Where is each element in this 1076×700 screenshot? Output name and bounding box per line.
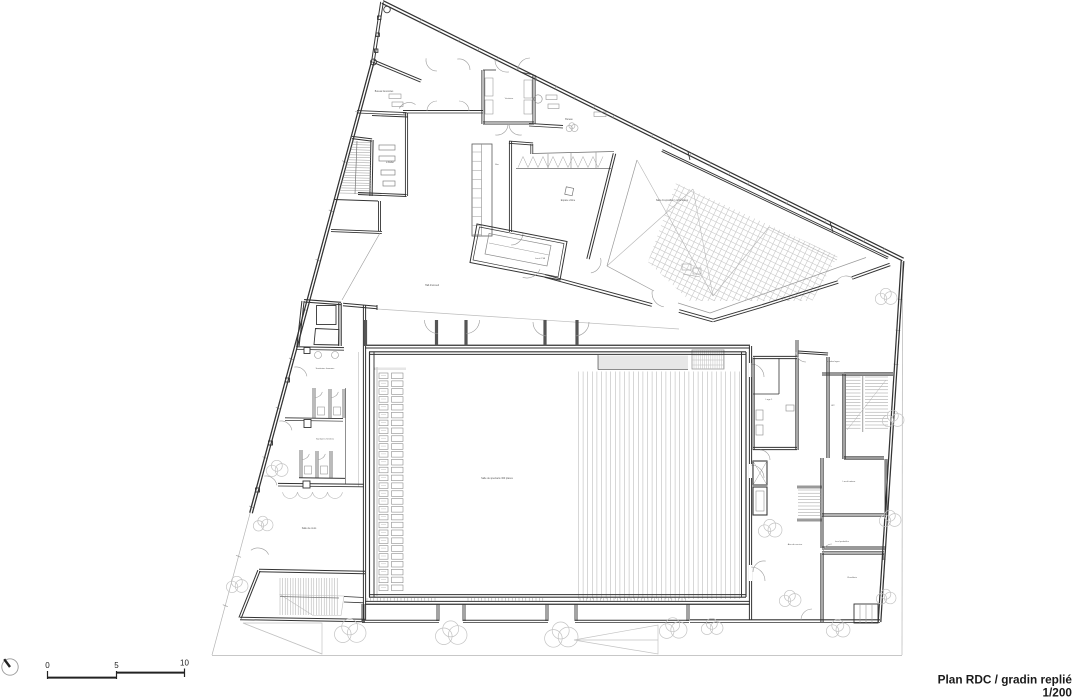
svg-text:local poubelles: local poubelles: [835, 541, 849, 543]
svg-text:Bureau: Bureau: [565, 118, 573, 121]
svg-text:Loge 1: Loge 1: [766, 399, 773, 401]
svg-text:L'Atelier: L'Atelier: [386, 161, 394, 164]
svg-text:Bar: Bar: [495, 163, 499, 166]
svg-text:10: 10: [180, 659, 189, 668]
svg-text:5: 5: [114, 661, 119, 670]
svg-text:Bureau bénévoles: Bureau bénévoles: [375, 90, 394, 93]
svg-text:0: 0: [45, 661, 50, 670]
svg-text:Sanitaires hommes: Sanitaires hommes: [316, 367, 336, 370]
svg-text:Espace vitrine: Espace vitrine: [561, 199, 576, 202]
svg-text:grandes loges: grandes loges: [826, 360, 839, 363]
svg-text:Salle d'exposition / conférenc: Salle d'exposition / conférences: [656, 199, 689, 202]
svg-text:Chaufferie: Chaufferie: [847, 576, 858, 579]
svg-text:Sanitaires femmes: Sanitaires femmes: [316, 438, 335, 441]
svg-text:Local traiteur: Local traiteur: [843, 480, 856, 483]
svg-text:Hall d'accueil: Hall d'accueil: [425, 284, 439, 287]
svg-text:Salle de cours: Salle de cours: [302, 527, 317, 530]
svg-text:WC: WC: [831, 405, 835, 407]
svg-text:Local CTA: Local CTA: [535, 257, 546, 260]
svg-text:1/200: 1/200: [1042, 686, 1072, 700]
svg-text:Aire de service: Aire de service: [788, 543, 803, 546]
svg-text:Plan RDC / gradin replié: Plan RDC / gradin replié: [938, 673, 1073, 687]
svg-text:Salle de spectacle 300 places: Salle de spectacle 300 places: [481, 477, 513, 480]
svg-text:Vestiaire: Vestiaire: [505, 97, 514, 100]
